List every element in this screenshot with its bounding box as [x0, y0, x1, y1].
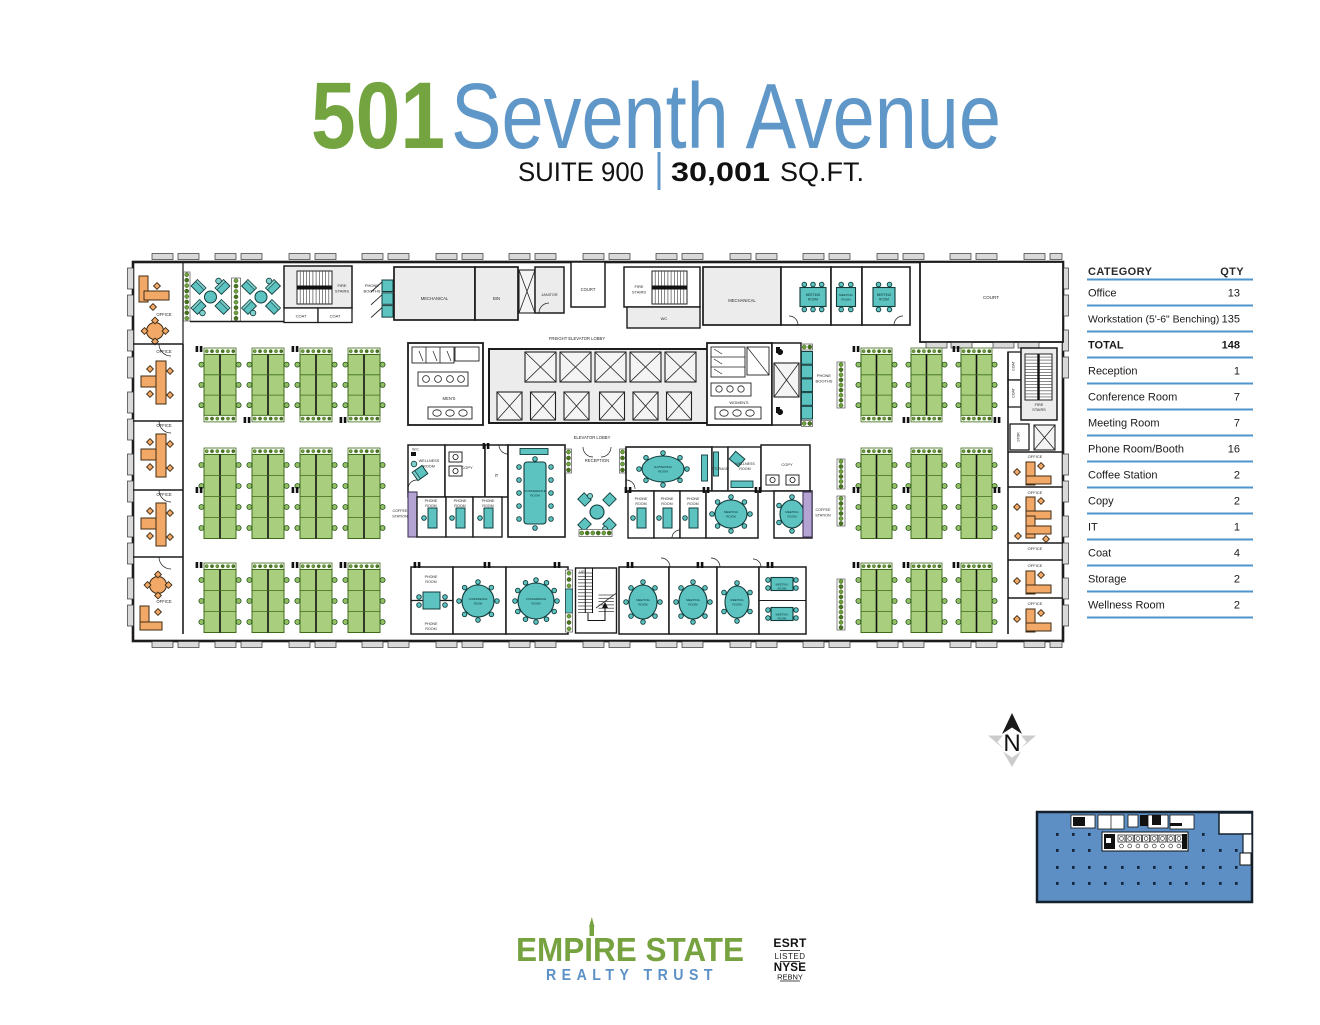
svg-text:COAT: COAT	[1012, 360, 1016, 371]
svg-text:OFFICE: OFFICE	[156, 599, 172, 604]
svg-text:501: 501	[311, 63, 445, 169]
svg-text:COFFEE: COFFEE	[393, 509, 408, 513]
svg-text:GATHERING: GATHERING	[654, 465, 673, 469]
svg-text:COURT: COURT	[581, 287, 596, 292]
svg-text:PHONE: PHONE	[482, 499, 495, 503]
svg-text:PHONE: PHONE	[661, 497, 674, 501]
svg-text:PHONE: PHONE	[425, 499, 438, 503]
svg-text:CONFERENCE: CONFERENCE	[526, 597, 546, 601]
svg-text:ROOM: ROOM	[532, 601, 542, 605]
svg-text:OFFICE: OFFICE	[1028, 454, 1043, 459]
svg-text:REBNY: REBNY	[777, 973, 803, 982]
svg-text:PHONE: PHONE	[425, 575, 438, 579]
svg-text:ROOM: ROOM	[658, 469, 668, 473]
svg-text:ROOM: ROOM	[482, 504, 493, 508]
svg-text:MEETING: MEETING	[785, 510, 799, 514]
svg-text:ROOM: ROOM	[474, 601, 483, 605]
svg-text:MEETING: MEETING	[877, 293, 892, 297]
svg-text:BIN: BIN	[493, 296, 500, 301]
svg-text:STAIRS: STAIRS	[1032, 408, 1046, 412]
svg-text:ROOM: ROOM	[423, 465, 435, 469]
svg-text:LISTED: LISTED	[774, 952, 805, 961]
svg-text:Coat: Coat	[1088, 548, 1111, 560]
svg-text:STATION: STATION	[815, 514, 831, 518]
svg-text:ROOM: ROOM	[425, 627, 436, 631]
svg-text:ROOM: ROOM	[739, 467, 750, 471]
svg-text:COURT: COURT	[983, 295, 999, 300]
svg-text:MEN'S: MEN'S	[443, 396, 456, 401]
svg-text:FIRE: FIRE	[634, 284, 643, 289]
svg-text:Wellness Room: Wellness Room	[1088, 600, 1165, 612]
svg-text:COPY: COPY	[461, 465, 473, 470]
svg-text:ROOM: ROOM	[788, 514, 798, 518]
svg-text:ROOM: ROOM	[808, 298, 818, 302]
svg-text:2: 2	[1234, 496, 1240, 508]
svg-text:WOMEN'S: WOMEN'S	[729, 400, 749, 405]
svg-text:STAIRS: STAIRS	[335, 289, 349, 294]
svg-text:MECHANICAL: MECHANICAL	[421, 296, 449, 301]
svg-text:ROOM: ROOM	[726, 514, 736, 518]
svg-text:148: 148	[1222, 340, 1240, 352]
svg-text:13: 13	[1228, 288, 1240, 300]
svg-text:ROOM: ROOM	[688, 602, 698, 606]
svg-text:JANITOR: JANITOR	[541, 293, 557, 297]
svg-text:7: 7	[1234, 392, 1240, 404]
svg-text:OFFICE: OFFICE	[1028, 546, 1043, 551]
svg-text:ROOM: ROOM	[638, 602, 648, 606]
svg-text:STORAGE: STORAGE	[712, 467, 729, 471]
svg-text:PHONE: PHONE	[687, 497, 700, 501]
svg-text:30,001: 30,001	[671, 157, 770, 187]
svg-text:2: 2	[1234, 470, 1240, 482]
svg-text:ROOM: ROOM	[425, 580, 436, 584]
svg-text:ROOM: ROOM	[454, 504, 465, 508]
svg-text:WC: WC	[661, 316, 668, 321]
svg-text:CONFERENCE: CONFERENCE	[524, 489, 546, 493]
svg-text:OFFICE: OFFICE	[1028, 563, 1043, 568]
svg-text:Coffee Station: Coffee Station	[1088, 470, 1158, 482]
svg-text:CATEGORY: CATEGORY	[1088, 266, 1153, 278]
svg-text:STAIRS: STAIRS	[632, 290, 646, 295]
svg-text:PHONE: PHONE	[817, 373, 832, 378]
svg-text:ROOM: ROOM	[635, 502, 646, 506]
svg-text:Meeting Room: Meeting Room	[1088, 418, 1160, 430]
svg-text:W.C.: W.C.	[412, 448, 420, 452]
svg-text:BOOTHS: BOOTHS	[364, 289, 381, 294]
svg-text:RECEPTION: RECEPTION	[585, 458, 609, 463]
svg-text:Seventh Avenue: Seventh Avenue	[451, 64, 1001, 168]
svg-text:OFFICE: OFFICE	[1028, 490, 1043, 495]
svg-text:Copy: Copy	[1088, 496, 1114, 508]
svg-text:REALTY TRUST: REALTY TRUST	[546, 967, 718, 984]
svg-text:MEETING: MEETING	[686, 598, 700, 602]
svg-text:OFFICE: OFFICE	[156, 492, 172, 497]
svg-text:SUITE 900: SUITE 900	[518, 157, 644, 187]
svg-text:FIRE: FIRE	[1035, 403, 1044, 407]
svg-text:ROOM: ROOM	[661, 502, 672, 506]
svg-text:FIRE: FIRE	[337, 283, 346, 288]
svg-text:COAT: COAT	[296, 314, 307, 319]
svg-text:QTY: QTY	[1220, 266, 1244, 278]
svg-text:PHONE: PHONE	[635, 497, 648, 501]
svg-text:4: 4	[1234, 548, 1240, 560]
svg-text:Office: Office	[1088, 288, 1117, 300]
svg-text:MEETING: MEETING	[839, 293, 853, 297]
svg-text:ROOM: ROOM	[733, 602, 743, 606]
svg-text:ROOM: ROOM	[778, 617, 787, 621]
svg-text:ROOM: ROOM	[778, 587, 787, 591]
svg-text:COFFEE: COFFEE	[816, 508, 831, 512]
svg-text:SQ.FT.: SQ.FT.	[780, 157, 864, 187]
svg-text:WELLNESS: WELLNESS	[735, 462, 755, 466]
svg-text:OFFICE: OFFICE	[156, 349, 172, 354]
svg-text:PHONE: PHONE	[454, 499, 467, 503]
svg-text:1: 1	[1234, 522, 1240, 534]
svg-text:IT: IT	[1088, 522, 1098, 534]
svg-text:COAT: COAT	[330, 314, 341, 319]
svg-text:N: N	[1003, 730, 1020, 757]
svg-text:STOR: STOR	[1017, 432, 1021, 442]
svg-text:OFFICE: OFFICE	[156, 423, 172, 428]
svg-text:COPY: COPY	[781, 462, 793, 467]
svg-text:7: 7	[1234, 418, 1240, 430]
svg-text:ESRT: ESRT	[773, 936, 807, 950]
svg-text:Reception: Reception	[1088, 366, 1138, 378]
svg-text:IT: IT	[495, 473, 499, 478]
svg-text:EMPIRE STATE: EMPIRE STATE	[516, 931, 744, 968]
svg-text:MECHANICAL: MECHANICAL	[728, 298, 756, 303]
svg-text:FREIGHT ELEVATOR LOBBY: FREIGHT ELEVATOR LOBBY	[549, 336, 605, 341]
svg-text:2: 2	[1234, 600, 1240, 612]
svg-text:UP: UP	[579, 570, 585, 574]
svg-text:CONFERENCE: CONFERENCE	[469, 597, 488, 601]
svg-text:2: 2	[1234, 574, 1240, 586]
svg-text:MEETING: MEETING	[724, 510, 739, 514]
svg-text:WELLNESS: WELLNESS	[419, 459, 440, 463]
svg-text:ROOM: ROOM	[841, 298, 851, 302]
svg-text:OFFICE: OFFICE	[1028, 601, 1043, 606]
svg-text:OFFICE: OFFICE	[156, 312, 172, 317]
svg-text:TOTAL: TOTAL	[1088, 340, 1124, 352]
svg-text:Storage: Storage	[1088, 574, 1127, 586]
svg-text:Workstation (5'-6" Benching): Workstation (5'-6" Benching)	[1088, 315, 1219, 326]
svg-text:16: 16	[1228, 444, 1240, 456]
svg-text:COAT: COAT	[1012, 387, 1016, 398]
svg-text:135: 135	[1222, 314, 1240, 326]
svg-text:ROOM: ROOM	[425, 504, 436, 508]
svg-text:ELEVATOR LOBBY: ELEVATOR LOBBY	[574, 435, 611, 440]
svg-text:ROOM: ROOM	[687, 502, 698, 506]
svg-text:PHONE: PHONE	[365, 283, 380, 288]
svg-text:MEETING: MEETING	[636, 598, 650, 602]
svg-text:MEETING: MEETING	[730, 598, 744, 602]
svg-text:STATION: STATION	[392, 515, 408, 519]
svg-text:Conference Room: Conference Room	[1088, 392, 1177, 404]
svg-text:ROOM: ROOM	[879, 298, 889, 302]
svg-text:MEETING: MEETING	[806, 293, 821, 297]
svg-text:1: 1	[1234, 366, 1240, 378]
svg-text:Phone Room/Booth: Phone Room/Booth	[1088, 444, 1184, 456]
svg-text:BOOTHS: BOOTHS	[816, 379, 833, 384]
svg-text:PHONE: PHONE	[425, 622, 438, 626]
svg-text:ROOM: ROOM	[530, 494, 540, 498]
